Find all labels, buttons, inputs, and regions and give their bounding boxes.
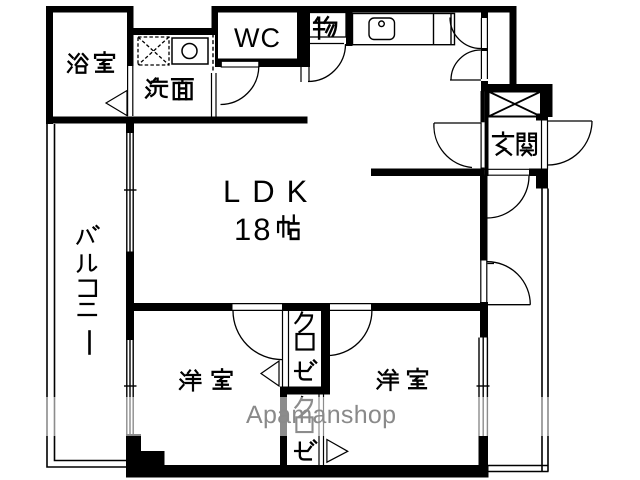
svg-text:Apamanshop: Apamanshop bbox=[246, 401, 396, 429]
svg-text:LDK: LDK bbox=[223, 174, 319, 209]
svg-text:WC: WC bbox=[234, 23, 281, 53]
svg-text:18: 18 bbox=[234, 212, 272, 247]
